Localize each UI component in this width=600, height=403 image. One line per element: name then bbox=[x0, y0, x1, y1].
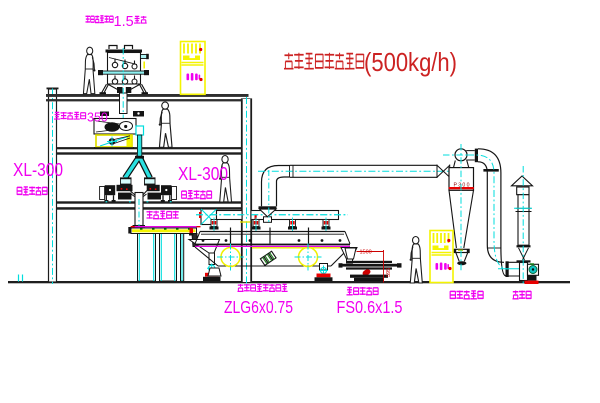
svg-text:ZLG6x0.75: ZLG6x0.75 bbox=[224, 297, 293, 317]
svg-text:XL-300: XL-300 bbox=[178, 163, 228, 184]
svg-text:350: 350 bbox=[87, 111, 108, 125]
svg-text:1.5: 1.5 bbox=[114, 14, 134, 30]
svg-text:1500: 1500 bbox=[360, 249, 372, 255]
svg-text:XL-300: XL-300 bbox=[13, 159, 63, 180]
svg-text:595: 595 bbox=[386, 268, 392, 277]
svg-text:FS0.6x1.5: FS0.6x1.5 bbox=[337, 297, 403, 317]
svg-text:(500kg/h): (500kg/h) bbox=[364, 47, 457, 77]
